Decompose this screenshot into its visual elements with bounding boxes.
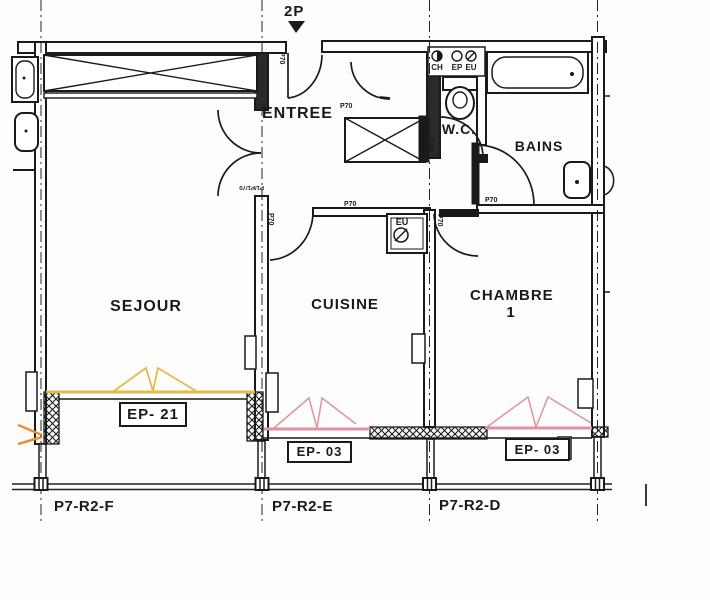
- pier-sejour-right: [247, 392, 263, 441]
- axis-label-f: P7-R2-F: [54, 498, 114, 515]
- axis-label-d: P7-R2-D: [439, 497, 501, 514]
- room-label-chambre-number: 1: [470, 304, 552, 321]
- pier-south-right: [592, 427, 608, 437]
- radiator-cuisine-east: [412, 334, 425, 363]
- pier-sejour-left: [44, 392, 59, 444]
- radiator-chambre: [578, 379, 593, 408]
- footing-left: [39, 444, 46, 478]
- axis-label-e: P7-R2-E: [272, 498, 333, 515]
- right-neighbor-fixtures: [604, 96, 614, 292]
- room-label-entree: ENTREE: [262, 105, 328, 123]
- toilet: [443, 77, 477, 119]
- wall-top-left: [18, 42, 286, 53]
- window-tag-chambre: EP- 03: [505, 438, 570, 461]
- door-tag-cuisine-door: P70: [267, 213, 274, 225]
- column-marker: [591, 478, 604, 490]
- door-tag-bains: P70: [485, 197, 497, 204]
- window-tag-sejour: EP- 21: [119, 402, 187, 427]
- window-cuisine: [264, 398, 370, 429]
- closet-entree: [345, 116, 429, 162]
- bains-door-leaf: [472, 143, 479, 204]
- entrance-leaf-tick: [380, 97, 390, 98]
- room-label-chambre: CHAMBRE: [470, 287, 552, 304]
- door-tag-wc: P80: [427, 139, 434, 151]
- room-label-wc: W.C.: [438, 121, 480, 137]
- door-tag-cuisine-wall: P70: [344, 201, 356, 208]
- door-tag-entree-stub: P70: [278, 52, 285, 64]
- radiator-sejour-right: [245, 336, 256, 369]
- door-tag-chambre: P70: [436, 214, 443, 226]
- room-label-bains: BAINS: [512, 138, 566, 154]
- window-tag-cuisine: EP- 03: [287, 441, 352, 463]
- wall-chambre-north: [440, 210, 478, 216]
- pier-south-middle: [370, 427, 487, 439]
- front-door-arc: [288, 55, 322, 98]
- radiator-cuisine: [266, 373, 278, 412]
- floor-plan: 2P SEJOUR ENTREE CUISINE W.C. BAINS CHAM…: [0, 0, 710, 600]
- column-marker: [35, 478, 48, 490]
- bathtub: [487, 52, 588, 93]
- column-marker: [256, 478, 269, 490]
- footing-cuisine-chambre: [427, 439, 434, 478]
- radiator-sejour-left: [26, 372, 37, 411]
- apartment-type-label: 2P: [284, 3, 304, 20]
- utility-label-ch: CH: [429, 63, 445, 72]
- neighbor-bathtub: [12, 57, 38, 102]
- utility-label-eu: EU: [463, 63, 479, 72]
- column-marker: [423, 478, 436, 490]
- room-label-sejour: SEJOUR: [105, 298, 187, 316]
- sejour-double-door-upper-arc: [218, 110, 261, 153]
- room-label-cuisine: CUISINE: [305, 296, 385, 313]
- entrance-second-leaf-arc: [351, 62, 390, 99]
- window-chambre: [485, 397, 592, 428]
- door-tag-double-door: P1/P1/70: [234, 184, 264, 190]
- wall-bains-chambre: [477, 205, 604, 213]
- window-sejour: [46, 368, 255, 392]
- entrance-arrow-icon: [288, 21, 305, 33]
- cuisine-door-arc: [270, 212, 313, 260]
- door-tag-entree-closet: P70: [340, 103, 352, 110]
- drain-label-eu: EU: [392, 217, 412, 227]
- closet-sejour-north: [44, 55, 257, 98]
- bains-sink: [564, 162, 590, 198]
